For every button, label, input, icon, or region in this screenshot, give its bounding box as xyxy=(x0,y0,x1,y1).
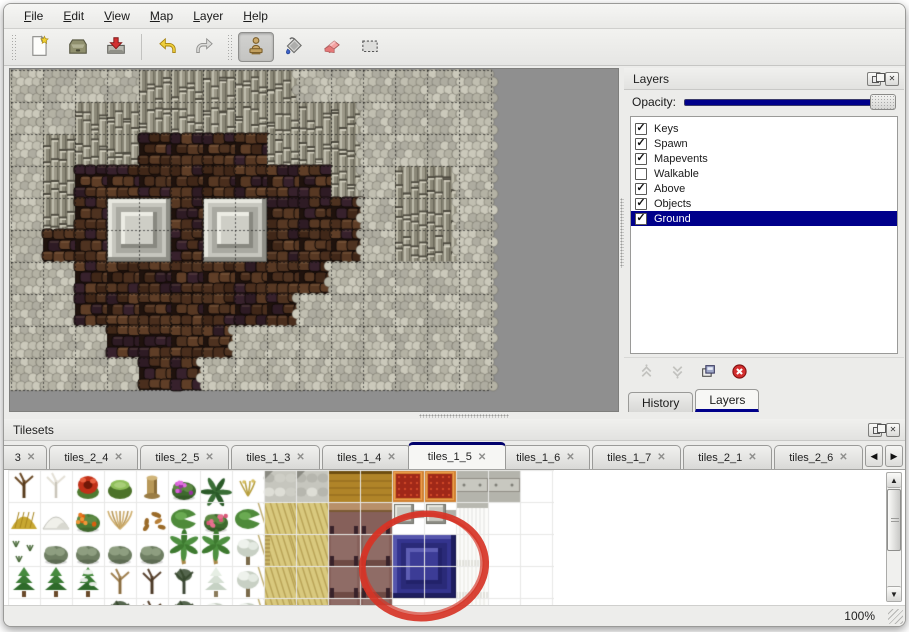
layer-visibility-checkbox[interactable]: ✓ xyxy=(635,183,647,195)
close-icon: ✕ xyxy=(889,74,896,83)
select-button[interactable] xyxy=(352,32,388,62)
fill-button[interactable] xyxy=(276,32,312,62)
layer-row-objects[interactable]: ✓Objects xyxy=(631,196,897,211)
tileset-tab-label: tiles_1_6 xyxy=(516,452,560,464)
layer-row-above[interactable]: ✓Above xyxy=(631,181,897,196)
duplicate-layer-icon xyxy=(700,363,717,383)
save-button[interactable] xyxy=(98,32,134,62)
tab-close-icon[interactable]: ✕ xyxy=(566,452,574,463)
close-icon: ✕ xyxy=(890,425,897,434)
tileset-tab-label: tiles_1_7 xyxy=(607,452,651,464)
tab-close-icon[interactable]: ✕ xyxy=(387,452,395,463)
float-panel-button[interactable] xyxy=(868,423,882,437)
tab-close-icon[interactable]: ✕ xyxy=(205,452,213,463)
menu-layer[interactable]: Layer xyxy=(183,6,233,26)
tab-close-icon[interactable]: ✕ xyxy=(839,452,847,463)
tileset-tab-label: tiles_1_3 xyxy=(246,452,290,464)
tileset-tab-label: 3 xyxy=(15,452,21,464)
menu-bar: FileEditViewMapLayerHelp xyxy=(4,4,905,29)
tileset-tab-label: tiles_1_4 xyxy=(337,452,381,464)
tileset-tab-tiles_2_5[interactable]: tiles_2_5✕ xyxy=(140,445,229,469)
zoom-level: 100% xyxy=(844,609,875,623)
opacity-slider-track xyxy=(684,99,896,106)
map-view-panel xyxy=(9,68,619,412)
tab-close-icon[interactable]: ✕ xyxy=(748,452,756,463)
menu-file[interactable]: File xyxy=(14,6,53,26)
tab-close-icon[interactable]: ✕ xyxy=(114,452,122,463)
float-icon xyxy=(873,427,880,434)
layers-panel-title: Layers xyxy=(633,72,863,86)
tileset-tab-label: tiles_2_5 xyxy=(155,452,199,464)
layer-visibility-checkbox[interactable]: ✓ xyxy=(635,123,647,135)
move-layer-down-button[interactable] xyxy=(665,362,689,384)
tilesets-panel: Tilesets ✕ 3✕tiles_2_4✕tiles_2_5✕tiles_1… xyxy=(4,419,905,605)
save-icon xyxy=(105,35,127,60)
layer-row-mapevents[interactable]: ✓Mapevents xyxy=(631,151,897,166)
toolbar-separator xyxy=(141,34,142,60)
tileset-tab-tiles_2_4[interactable]: tiles_2_4✕ xyxy=(49,445,138,469)
undo-button[interactable] xyxy=(149,32,185,62)
tileset-tab-tiles_1_3[interactable]: tiles_1_3✕ xyxy=(231,445,320,469)
tileset-tab-tiles_1_6[interactable]: tiles_1_6✕ xyxy=(501,445,590,469)
layer-row-keys[interactable]: ✓Keys xyxy=(631,121,897,136)
move-layer-up-button[interactable] xyxy=(634,362,658,384)
toolbar-handle[interactable] xyxy=(11,34,18,60)
app-window: FileEditViewMapLayerHelp Layers ✕ Opacit… xyxy=(3,3,906,627)
tab-layers[interactable]: Layers xyxy=(695,389,759,412)
tileset-scrollbar[interactable]: ▲ ▼ xyxy=(886,472,902,602)
tab-close-icon[interactable]: ✕ xyxy=(296,452,304,463)
tilesets-panel-title: Tilesets xyxy=(13,423,864,437)
layer-name: Keys xyxy=(654,123,678,135)
layer-buttons-row xyxy=(624,357,904,387)
tileset-tab-label: tiles_2_6 xyxy=(789,452,833,464)
layer-name: Objects xyxy=(654,198,691,210)
tileset-tab-tiles_2_6[interactable]: tiles_2_6✕ xyxy=(774,445,863,469)
menu-map[interactable]: Map xyxy=(140,6,183,26)
toolbar-handle[interactable] xyxy=(227,34,234,60)
tileset-tab-tiles_2_1[interactable]: tiles_2_1✕ xyxy=(683,445,772,469)
layers-panel-header: Layers ✕ xyxy=(624,68,904,90)
float-panel-button[interactable] xyxy=(867,72,881,86)
layer-visibility-checkbox[interactable]: ✓ xyxy=(635,153,647,165)
layer-row-spawn[interactable]: ✓Spawn xyxy=(631,136,897,151)
layer-name: Mapevents xyxy=(654,153,708,165)
tileset-tabs: 3✕tiles_2_4✕tiles_2_5✕tiles_1_3✕tiles_1_… xyxy=(4,441,905,469)
tileset-tab-label: tiles_1_5 xyxy=(428,451,472,463)
opacity-slider[interactable] xyxy=(684,94,896,110)
tab-close-icon[interactable]: ✕ xyxy=(478,452,486,463)
layer-visibility-checkbox[interactable] xyxy=(635,168,647,180)
float-icon xyxy=(872,76,879,83)
tileset-tab-label: tiles_2_4 xyxy=(64,452,108,464)
scroll-down-button[interactable]: ▼ xyxy=(887,586,901,601)
layer-row-walkable[interactable]: Walkable xyxy=(631,166,897,181)
new-button[interactable] xyxy=(22,32,58,62)
layer-list: ✓Keys✓Spawn✓MapeventsWalkable✓Above✓Obje… xyxy=(630,116,898,354)
horizontal-splitter[interactable] xyxy=(4,412,905,419)
panel-bottom-tabs: HistoryLayers xyxy=(624,387,904,412)
resize-grip[interactable] xyxy=(888,609,903,624)
menu-view[interactable]: View xyxy=(94,6,140,26)
open-icon xyxy=(67,35,89,60)
status-bar: 100% xyxy=(4,605,905,626)
tab-close-icon[interactable]: ✕ xyxy=(657,452,665,463)
opacity-slider-handle[interactable] xyxy=(870,94,896,110)
move-layer-up-icon xyxy=(638,363,655,383)
new-file-icon xyxy=(29,35,51,60)
menu-help[interactable]: Help xyxy=(233,6,278,26)
tab-history[interactable]: History xyxy=(628,392,693,412)
layer-name: Spawn xyxy=(654,138,688,150)
undo-icon xyxy=(156,35,178,60)
eraser-tool-icon xyxy=(321,35,343,60)
tileset-tab-tiles_1_4[interactable]: tiles_1_4✕ xyxy=(322,445,411,469)
opacity-row: Opacity: xyxy=(624,90,904,114)
close-panel-button[interactable]: ✕ xyxy=(885,72,899,86)
layer-name: Above xyxy=(654,183,685,195)
tileset-content: ▲ ▼ xyxy=(4,469,905,605)
tabs-scroll-left-button[interactable]: ◀ xyxy=(865,445,883,467)
delete-layer-button[interactable] xyxy=(727,362,751,384)
layer-row-ground[interactable]: ✓Ground xyxy=(631,211,897,226)
layer-name: Walkable xyxy=(654,168,699,180)
layer-visibility-checkbox[interactable]: ✓ xyxy=(635,213,647,225)
layers-panel: Layers ✕ Opacity: ✓Keys✓Spawn✓MapeventsW… xyxy=(624,68,904,412)
select-tool-icon xyxy=(359,35,381,60)
stamp-button[interactable] xyxy=(238,32,274,62)
scroll-up-button[interactable]: ▲ xyxy=(887,473,901,488)
map-canvas[interactable] xyxy=(10,69,618,411)
redo-button[interactable] xyxy=(187,32,223,62)
tabs-scroll-right-button[interactable]: ▶ xyxy=(885,445,903,467)
layer-name: Ground xyxy=(654,213,691,225)
stamp-tool-icon xyxy=(245,35,267,60)
move-layer-down-icon xyxy=(669,363,686,383)
tileset-tab-label: tiles_2_1 xyxy=(698,452,742,464)
tileset-tab-3[interactable]: 3✕ xyxy=(4,445,47,469)
delete-layer-icon xyxy=(731,363,748,383)
tileset-canvas[interactable] xyxy=(8,470,554,605)
scrollbar-thumb[interactable] xyxy=(887,489,901,551)
fill-tool-icon xyxy=(283,35,305,60)
redo-icon xyxy=(194,35,216,60)
menu-edit[interactable]: Edit xyxy=(53,6,94,26)
eraser-button[interactable] xyxy=(314,32,350,62)
layer-visibility-checkbox[interactable]: ✓ xyxy=(635,138,647,150)
toolbar xyxy=(4,29,905,66)
open-button[interactable] xyxy=(60,32,96,62)
tab-close-icon[interactable]: ✕ xyxy=(27,452,35,463)
tileset-tab-tiles_1_5[interactable]: tiles_1_5✕ xyxy=(408,442,506,469)
close-panel-button[interactable]: ✕ xyxy=(886,423,900,437)
tileset-tab-tiles_1_7[interactable]: tiles_1_7✕ xyxy=(592,445,681,469)
duplicate-layer-button[interactable] xyxy=(696,362,720,384)
layer-visibility-checkbox[interactable]: ✓ xyxy=(635,198,647,210)
tilesets-panel-header: Tilesets ✕ xyxy=(4,419,905,441)
opacity-label: Opacity: xyxy=(632,95,676,109)
